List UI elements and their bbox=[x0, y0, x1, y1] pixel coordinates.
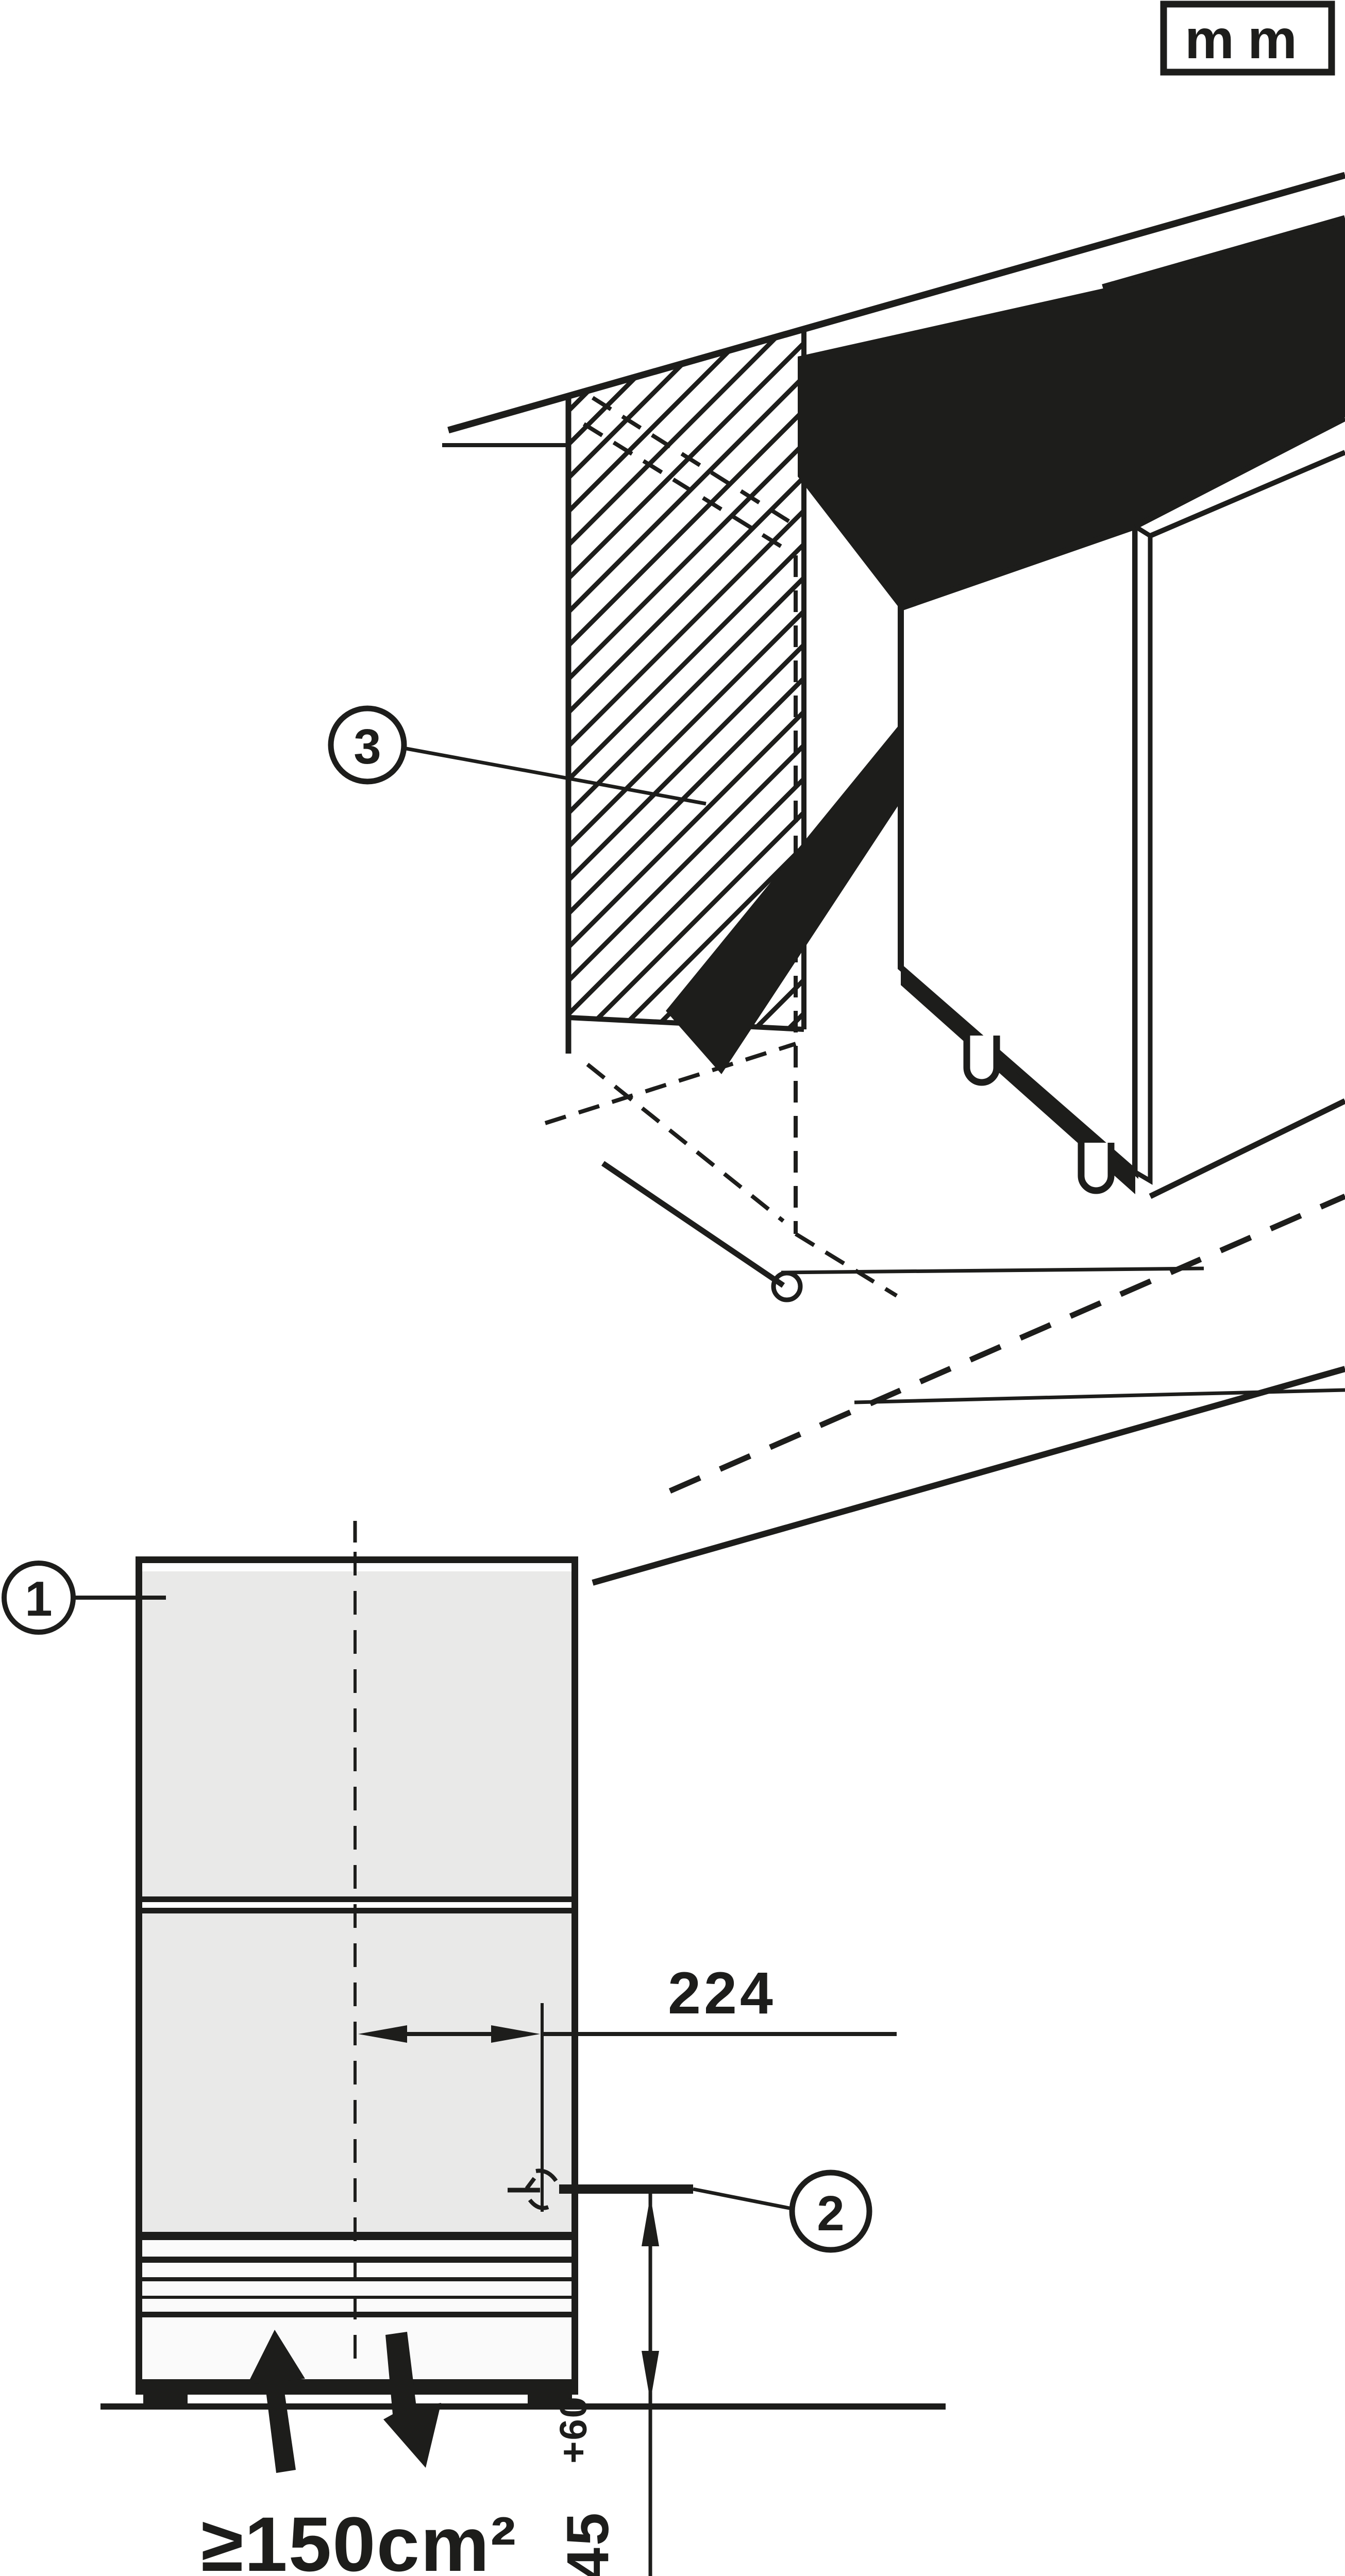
plinth-hidden-edge-dashed bbox=[670, 1196, 1345, 1491]
vent-slat-line bbox=[142, 2312, 571, 2317]
vent-top-band bbox=[142, 2232, 571, 2240]
plinth-reference-bar bbox=[559, 2184, 693, 2194]
caster-front-right bbox=[1081, 1143, 1111, 1191]
dim-145-tolerance: +60 bbox=[552, 2396, 595, 2464]
callout-2-label: 2 bbox=[817, 2186, 844, 2241]
vent-area-label: ≥150cm² bbox=[201, 2501, 517, 2576]
appliance-side-edge bbox=[1135, 527, 1150, 1181]
dim-145-value: 145 bbox=[555, 2511, 621, 2576]
callout-3-label: 3 bbox=[354, 719, 381, 774]
niche-floor-edge-dashed bbox=[587, 1064, 783, 1221]
vent-slat-line bbox=[142, 2257, 571, 2263]
door-split-line-upper bbox=[142, 1896, 571, 1902]
perspective-drawing: 3 bbox=[331, 175, 1345, 1583]
callout-2: 2 bbox=[559, 2173, 869, 2250]
niche-floor-behind-door-dashed bbox=[796, 1234, 897, 1296]
niche-floor-front-edge bbox=[781, 1268, 1204, 1273]
vent-slat-line bbox=[142, 2296, 571, 2299]
door-split-line-lower bbox=[142, 1908, 571, 1913]
cabinet-bottom-right-edge bbox=[1150, 1101, 1345, 1196]
dim-145-arrow-down bbox=[642, 2351, 659, 2401]
vent-grille bbox=[142, 2232, 571, 2379]
dim-224-value: 224 bbox=[668, 1960, 776, 2026]
floor-step-curl bbox=[774, 1273, 800, 1300]
callout-2-leader bbox=[693, 2189, 792, 2209]
installation-diagram: mm bbox=[0, 0, 1345, 2576]
niche-bottom-front-edge-dashed bbox=[545, 1044, 796, 1123]
mm-box-label: mm bbox=[1185, 8, 1310, 70]
callout-1-label: 1 bbox=[25, 1571, 52, 1626]
front-elevation: 1 224 2 145 +60 bbox=[4, 1521, 946, 2576]
floor-step-edge bbox=[603, 1163, 783, 1285]
floor-line bbox=[100, 2403, 946, 2410]
vent-slat-line bbox=[142, 2277, 571, 2281]
mm-unit-box: mm bbox=[1164, 4, 1332, 72]
caster-front-left bbox=[967, 1036, 997, 1082]
diagram-page: mm bbox=[0, 0, 1345, 2576]
dim-145-arrow-up bbox=[642, 2196, 659, 2246]
top-panel-gap bbox=[142, 1563, 571, 1571]
